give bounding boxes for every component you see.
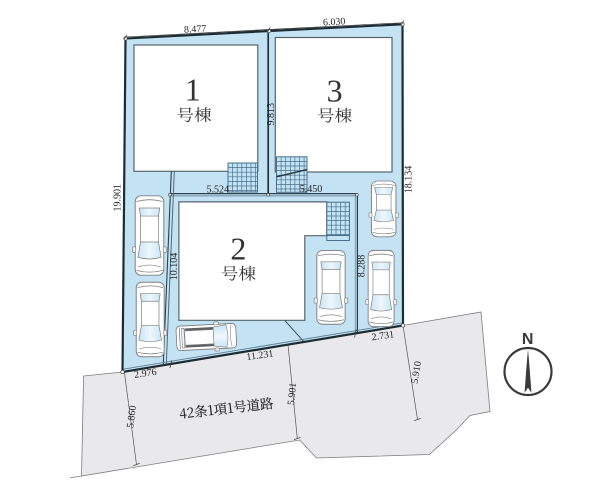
svg-text:5.450: 5.450 <box>300 184 323 195</box>
svg-text:9.813: 9.813 <box>266 103 277 126</box>
svg-text:18.134: 18.134 <box>404 166 415 194</box>
svg-text:8.288: 8.288 <box>356 255 367 278</box>
svg-text:19.901: 19.901 <box>112 184 123 212</box>
svg-text:5.524: 5.524 <box>207 184 230 195</box>
svg-text:N: N <box>522 331 534 348</box>
svg-text:3: 3 <box>327 72 343 108</box>
svg-text:1: 1 <box>185 71 201 107</box>
svg-text:5.901: 5.901 <box>286 382 299 405</box>
svg-text:2: 2 <box>230 230 246 266</box>
svg-text:8.477: 8.477 <box>184 24 207 36</box>
svg-text:6.030: 6.030 <box>323 16 346 28</box>
svg-text:10.104: 10.104 <box>169 253 180 281</box>
